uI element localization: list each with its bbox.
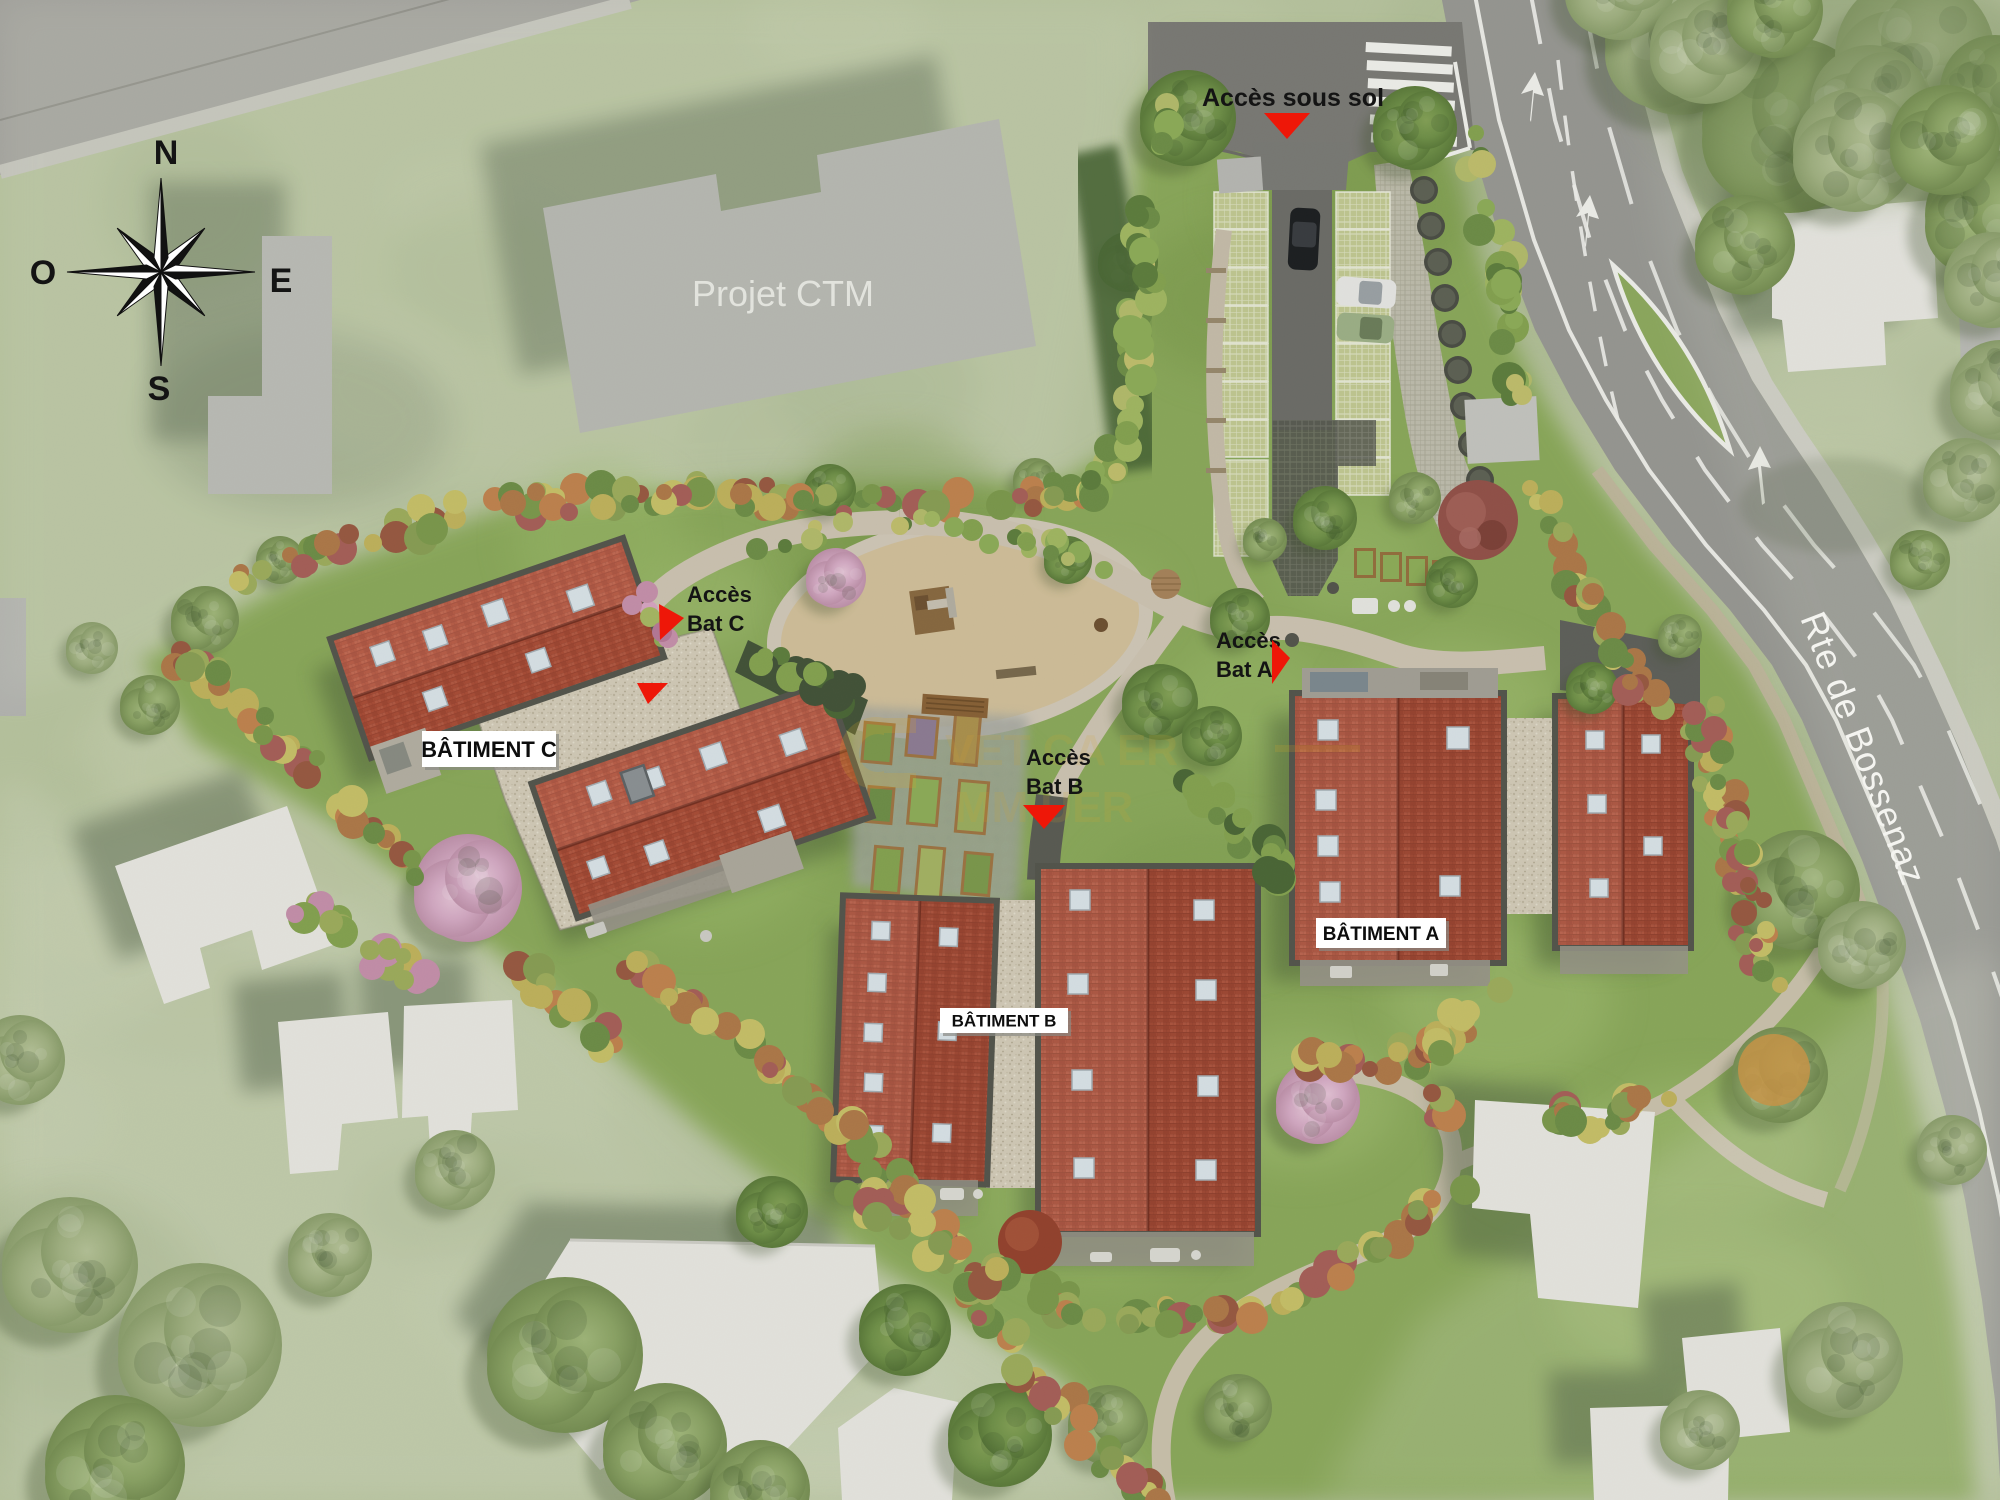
svg-text:N: N bbox=[154, 134, 179, 172]
svg-text:Bat C: Bat C bbox=[687, 611, 745, 636]
svg-text:O: O bbox=[30, 254, 56, 292]
svg-text:BÂTIMENT B: BÂTIMENT B bbox=[952, 1012, 1057, 1031]
svg-text:S: S bbox=[148, 370, 171, 408]
svg-text:Accès sous sol: Accès sous sol bbox=[1202, 84, 1384, 112]
svg-text:Bat B: Bat B bbox=[1026, 774, 1083, 799]
svg-text:BÂTIMENT A: BÂTIMENT A bbox=[1323, 923, 1440, 945]
svg-text:Accès: Accès bbox=[1216, 628, 1281, 653]
svg-text:BÂTIMENT C: BÂTIMENT C bbox=[421, 737, 557, 762]
svg-text:Accès: Accès bbox=[1026, 745, 1091, 770]
svg-text:Bat A: Bat A bbox=[1216, 657, 1273, 682]
svg-text:Accès: Accès bbox=[687, 582, 752, 607]
svg-text:E: E bbox=[270, 262, 293, 300]
